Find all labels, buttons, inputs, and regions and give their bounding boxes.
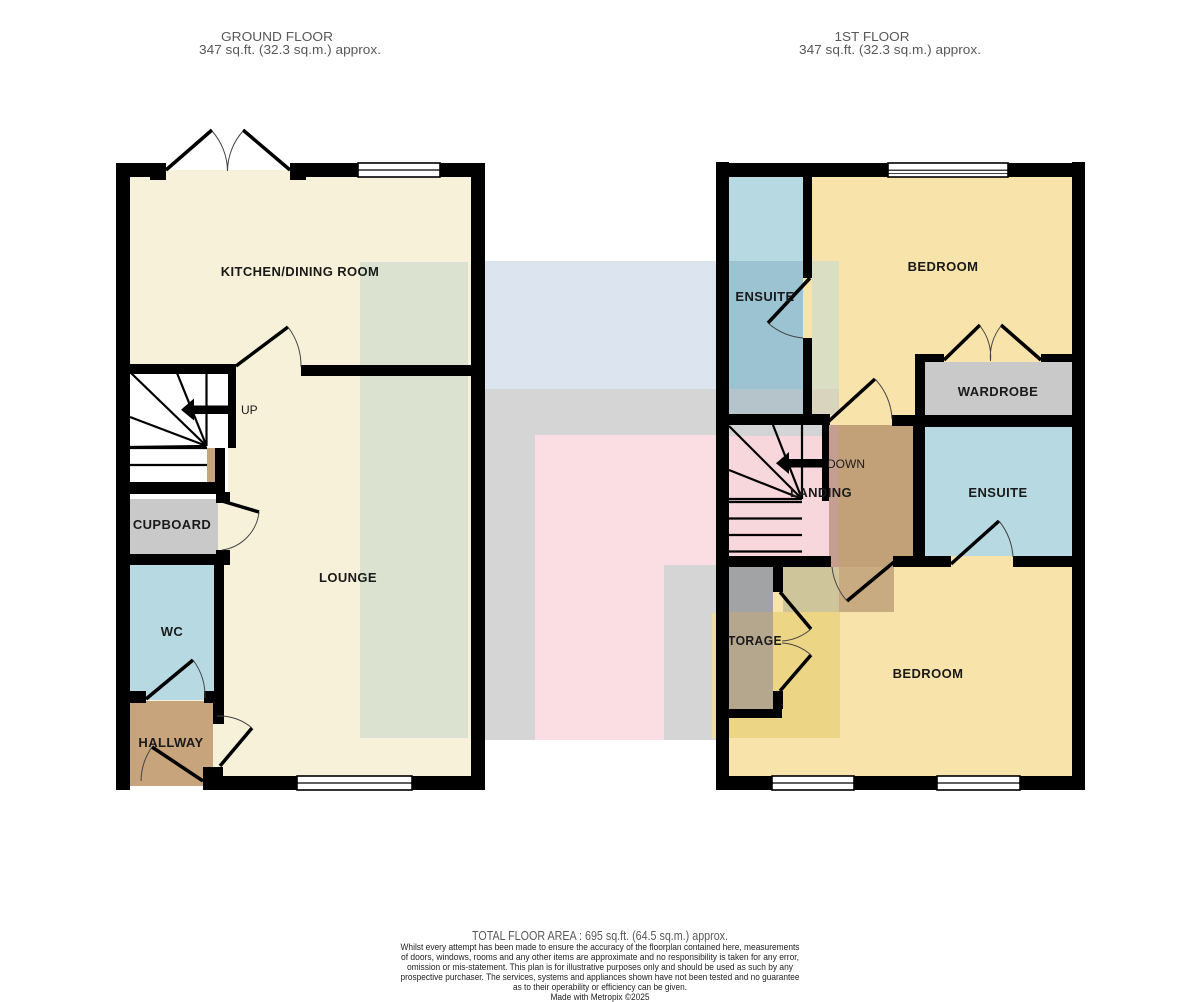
svg-text:TOTAL FLOOR AREA : 695 sq.ft.: TOTAL FLOOR AREA : 695 sq.ft. (64.5 sq.m… — [472, 928, 728, 943]
svg-text:Made with Metropix ©2025: Made with Metropix ©2025 — [551, 992, 650, 1002]
svg-text:LANDING: LANDING — [790, 485, 852, 500]
svg-text:UP: UP — [241, 403, 258, 417]
svg-text:HALLWAY: HALLWAY — [138, 735, 203, 750]
svg-text:DOWN: DOWN — [827, 457, 865, 471]
svg-text:WARDROBE: WARDROBE — [958, 384, 1038, 399]
svg-text:BEDROOM: BEDROOM — [893, 666, 964, 681]
svg-text:TORAGE: TORAGE — [728, 633, 782, 648]
svg-text:LOUNGE: LOUNGE — [319, 570, 377, 585]
svg-text:BEDROOM: BEDROOM — [908, 259, 979, 274]
svg-text:347 sq.ft. (32.3 sq.m.) approx: 347 sq.ft. (32.3 sq.m.) approx. — [199, 42, 381, 57]
svg-text:ENSUITE: ENSUITE — [735, 289, 794, 304]
svg-text:Whilst every attempt has been: Whilst every attempt has been made to en… — [401, 942, 800, 952]
svg-text:omission or mis-statement. Thi: omission or mis-statement. This plan is … — [407, 962, 793, 972]
svg-text:WC: WC — [161, 624, 184, 639]
svg-text:of doors, windows, rooms and a: of doors, windows, rooms and any other i… — [401, 952, 799, 962]
svg-text:prospective purchaser. The ser: prospective purchaser. The services, sys… — [401, 972, 800, 982]
svg-text:CUPBOARD: CUPBOARD — [133, 517, 211, 532]
svg-text:ENSUITE: ENSUITE — [968, 485, 1027, 500]
svg-text:347 sq.ft. (32.3 sq.m.) approx: 347 sq.ft. (32.3 sq.m.) approx. — [799, 42, 981, 57]
svg-text:as to their operability or eff: as to their operability or efficiency ca… — [513, 982, 687, 992]
svg-text:KITCHEN/DINING ROOM: KITCHEN/DINING ROOM — [221, 264, 380, 279]
